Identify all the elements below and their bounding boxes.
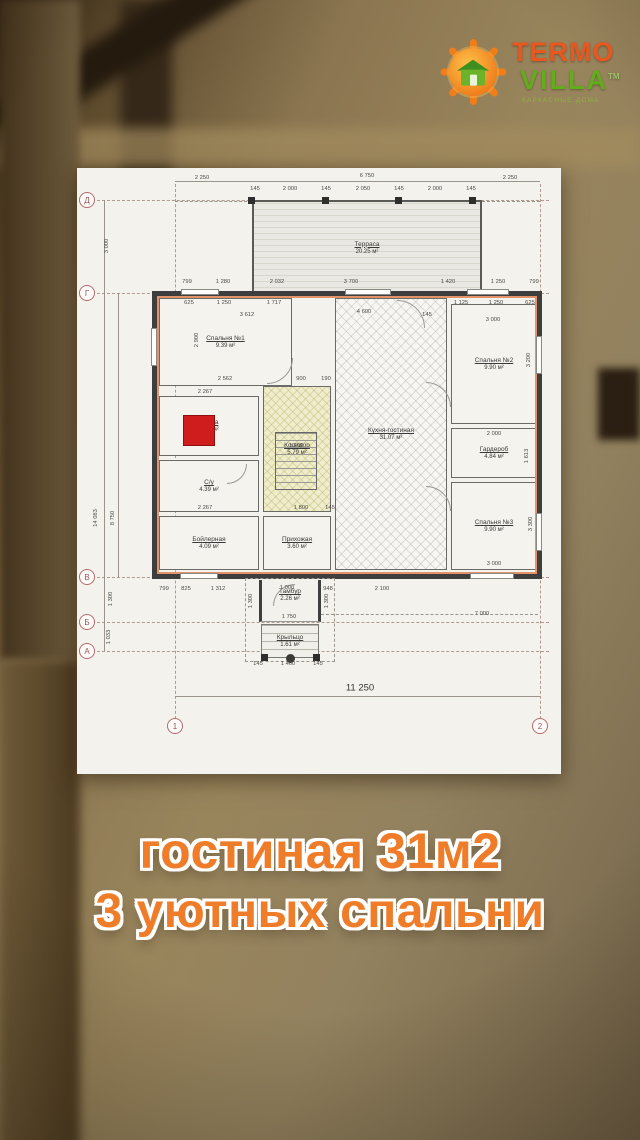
dimension-label: 2 032 — [270, 279, 285, 285]
window-marker — [536, 336, 542, 374]
room-area: 9.39 м² — [216, 343, 235, 349]
dimension-label: 1 460 — [281, 661, 296, 667]
dimension-label: 145 — [466, 186, 476, 192]
dimension-label: 2 267 — [198, 389, 213, 395]
logo-villa-word: VILLA — [520, 65, 608, 95]
room-name: Спальня №3 — [475, 519, 514, 526]
dimension-label: 3 700 — [344, 279, 359, 285]
dimension-label: 900 — [296, 376, 306, 382]
dimension-label: 625 — [525, 300, 535, 306]
dimension-label: 1 300 — [324, 594, 330, 609]
room-area: 20.25 м² — [356, 249, 379, 255]
room-area: 4.39 м² — [199, 487, 218, 493]
dimension-label: 625 — [184, 300, 194, 306]
logo-tm: TM — [608, 72, 620, 81]
sun-house-icon — [440, 39, 506, 105]
logo-tagline: КАРКАСНЫЕ ДОМА — [522, 98, 620, 105]
logo-text: TERMO VILLATM КАРКАСНЫЕ ДОМА — [512, 39, 620, 105]
terrace-post-icon — [261, 654, 268, 661]
axis-label: Г — [79, 285, 95, 301]
dimension-label: 825 — [181, 586, 191, 592]
dimension-label: 1 300 — [248, 594, 254, 609]
dimension-label: 1 250 — [491, 279, 506, 285]
dimension-label: 14 083 — [93, 509, 99, 527]
beam-line — [482, 201, 540, 202]
caption-line-2: 3 уютных спальни — [0, 884, 640, 939]
house-icon — [458, 60, 488, 87]
dimension-label: 2 267 — [198, 505, 213, 511]
dimension-label: 1 750 — [282, 614, 297, 620]
room-area: 4.84 м² — [484, 454, 503, 460]
dimension-label: 1 717 — [267, 300, 282, 306]
dimension-label: 1 280 — [216, 279, 231, 285]
terrace-post-icon — [469, 197, 476, 204]
dimension-label: 145 — [422, 312, 432, 318]
axis-label: А — [79, 643, 95, 659]
door-arc — [426, 382, 451, 407]
dimension-label: 145 — [321, 186, 331, 192]
dimension-label: 11 250 — [346, 683, 374, 694]
dimension-label: 2 000 — [283, 186, 298, 192]
room-name: Спальня №1 — [206, 335, 245, 342]
room-area: 9.90 м² — [484, 365, 503, 371]
floor-plan-sheet: ДГВБА12Терраса20.25 м²Спальня №19.39 м²К… — [77, 168, 561, 774]
dimension-label: 2 100 — [375, 586, 390, 592]
dimension-line — [175, 181, 540, 182]
dimension-label: 1 800 — [294, 505, 309, 511]
dimension-label: 2 000 — [487, 431, 502, 437]
dimension-label: 2 562 — [218, 376, 233, 382]
dimension-label: 145 — [394, 186, 404, 192]
house-door — [470, 75, 477, 86]
dimension-label: 1 420 — [441, 279, 456, 285]
dimension-label: 190 — [321, 376, 331, 382]
room-kitchen-living: Кухня-гостиная31.07 м² — [335, 298, 447, 570]
dimension-label: 799 — [182, 279, 192, 285]
dimension-label: 1 200 — [289, 443, 304, 449]
window-marker — [470, 573, 514, 579]
dimension-label: 145 — [313, 661, 323, 667]
axis-label: Д — [79, 192, 95, 208]
dimension-label: 1 613 — [524, 449, 530, 464]
dimension-label: 2 050 — [356, 186, 371, 192]
room-boiler-room: Бойлерная4.09 м² — [159, 516, 259, 570]
room-area: 3.60 м² — [287, 544, 306, 550]
room-area: 9.90 м² — [484, 527, 503, 533]
room-name: Прихожая — [282, 536, 312, 543]
room-name: Гардероб — [480, 446, 509, 453]
terrace-post-icon — [313, 654, 320, 661]
dimension-label: 4 600 — [357, 309, 372, 315]
axis-line — [540, 184, 541, 734]
room-name: Терраса — [355, 241, 380, 248]
dimension-label: 3 612 — [240, 312, 255, 318]
dimension-label: 7 000 — [475, 611, 490, 617]
dimension-label: 948 — [323, 586, 333, 592]
room-area: 31.07 м² — [380, 435, 403, 441]
dimension-label: 3 000 — [486, 317, 501, 323]
dimension-line — [175, 696, 540, 697]
dimension-line — [118, 293, 119, 577]
dimension-label: 145 — [250, 186, 260, 192]
beam-line — [175, 201, 252, 202]
logo-villa: VILLATM — [520, 67, 620, 94]
terrace-post-icon — [395, 197, 402, 204]
dimension-label: 1 312 — [211, 586, 226, 592]
roof-overhang-line — [321, 614, 538, 615]
room-name: Бойлерная — [192, 536, 225, 543]
axis-label: 2 — [532, 718, 548, 734]
room-name: С/у — [204, 479, 214, 486]
dimension-label: 3 300 — [528, 517, 534, 532]
axis-line — [175, 184, 176, 734]
dimension-label: 2 000 — [428, 186, 443, 192]
dimension-line — [104, 200, 105, 651]
caption-line-1: гостиная 31м2 — [0, 822, 640, 880]
room-bedroom-3: Спальня №39.90 м² — [451, 482, 537, 570]
logo: TERMO VILLATM КАРКАСНЫЕ ДОМА — [440, 30, 636, 114]
room-hallway: Прихожая3.60 м² — [263, 516, 331, 570]
video-frame: TERMO VILLATM КАРКАСНЫЕ ДОМА ДГВБА12Терр… — [0, 0, 640, 1140]
room-name: Кухня-гостиная — [368, 427, 414, 434]
logo-termo: TERMO — [512, 39, 620, 66]
terrace-post-icon — [322, 197, 329, 204]
room-area: 4.09 м² — [199, 544, 218, 550]
dimension-label: 799 — [159, 586, 169, 592]
door-arc — [426, 486, 451, 511]
window-marker — [151, 328, 157, 366]
attic-ladder — [275, 432, 317, 490]
terrace-post-icon — [248, 197, 255, 204]
dimension-label: 6 750 — [360, 173, 375, 179]
dimension-label: 2 250 — [503, 175, 518, 181]
sauna-stove — [183, 415, 215, 446]
dimension-label: 1 000 — [280, 585, 295, 591]
window-marker — [536, 513, 542, 551]
dimension-label: 2 900 — [194, 333, 200, 348]
dimension-label: 1 125 — [454, 300, 469, 306]
window-marker — [467, 289, 509, 295]
dimension-label: 1 250 — [489, 300, 504, 306]
dimension-label: 2 250 — [195, 175, 210, 181]
dimension-label: 3 000 — [104, 239, 110, 254]
window-marker — [180, 573, 218, 579]
dimension-label: 3 000 — [487, 561, 502, 567]
axis-label: В — [79, 569, 95, 585]
floor-plan-layer: ДГВБА12Терраса20.25 м²Спальня №19.39 м²К… — [77, 168, 561, 774]
dimension-label: 1 300 — [108, 592, 114, 607]
dimension-label: 3 200 — [526, 353, 532, 368]
dimension-label: 145 — [253, 661, 263, 667]
room-name: Спальня №2 — [475, 357, 514, 364]
dimension-label: 799 — [529, 279, 539, 285]
window-marker — [181, 289, 219, 295]
dimension-label: 1 033 — [106, 630, 112, 645]
axis-label: Б — [79, 614, 95, 630]
dimension-label: 1 250 — [217, 300, 232, 306]
dimension-label: 8 750 — [110, 511, 116, 526]
window-marker — [345, 289, 391, 295]
dimension-label: 145 — [325, 505, 335, 511]
axis-label: 1 — [167, 718, 183, 734]
